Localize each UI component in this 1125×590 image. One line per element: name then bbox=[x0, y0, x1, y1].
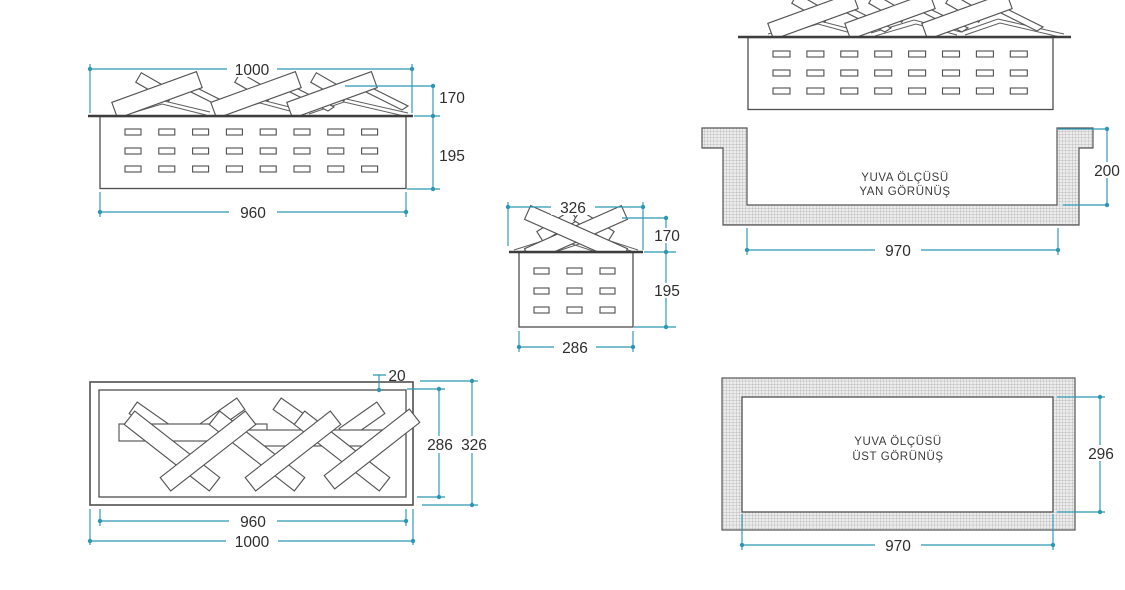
vent-slot bbox=[567, 268, 582, 274]
dim-value: 960 bbox=[240, 514, 266, 531]
recess-label-line1: YUVA ÖLÇÜSÜ bbox=[861, 172, 949, 184]
vent-slot bbox=[125, 129, 141, 135]
log-main bbox=[112, 72, 202, 119]
dimension-inner-depth: 286 bbox=[407, 387, 457, 499]
dim-value: 1000 bbox=[235, 62, 270, 79]
vent-slot bbox=[362, 148, 378, 154]
dim-value: 296 bbox=[1088, 446, 1114, 463]
dim-value: 195 bbox=[439, 148, 465, 165]
recess-label-line2: YAN GÖRÜNÜŞ bbox=[859, 186, 950, 198]
dim-value: 326 bbox=[461, 437, 487, 454]
vent-slot bbox=[534, 288, 549, 294]
vent-slot bbox=[260, 129, 276, 135]
vent-slot bbox=[600, 307, 615, 313]
dimension-bottom-width: 960 bbox=[98, 192, 408, 222]
dim-value: 200 bbox=[1094, 163, 1120, 180]
dim-value: 170 bbox=[654, 228, 680, 245]
burner-tray-body bbox=[748, 38, 1053, 110]
vent-slot bbox=[943, 51, 960, 57]
dim-value: 970 bbox=[885, 243, 911, 260]
burner-tray-body bbox=[100, 117, 406, 189]
vent-slot bbox=[125, 148, 141, 154]
vent-slot bbox=[1010, 88, 1027, 94]
vent-slot bbox=[294, 129, 310, 135]
vent-slot bbox=[125, 166, 141, 172]
dim-value: 326 bbox=[560, 200, 586, 217]
technical-drawing-page: 1000 170 195 960 bbox=[0, 0, 1125, 590]
dim-value: 170 bbox=[439, 90, 465, 107]
recess-label-line1: YUVA ÖLÇÜSÜ bbox=[854, 436, 942, 448]
vent-slot bbox=[1010, 70, 1027, 76]
vent-slot bbox=[193, 166, 209, 172]
dimension-bottom-width: 286 bbox=[517, 331, 635, 357]
vent-slot bbox=[159, 129, 175, 135]
vent-slot bbox=[294, 166, 310, 172]
dim-value: 960 bbox=[240, 205, 266, 222]
vent-slot bbox=[773, 88, 790, 94]
dim-value: 1000 bbox=[235, 534, 270, 551]
dim-value: 286 bbox=[562, 340, 588, 357]
dim-value: 20 bbox=[388, 368, 406, 385]
dim-value: 970 bbox=[885, 538, 911, 555]
vent-slot bbox=[534, 307, 549, 313]
vent-slot bbox=[159, 166, 175, 172]
vent-slot bbox=[807, 88, 824, 94]
vent-slot bbox=[362, 166, 378, 172]
vent-slot bbox=[226, 166, 242, 172]
vent-slot bbox=[943, 88, 960, 94]
vent-slot bbox=[841, 70, 858, 76]
vent-slot bbox=[841, 51, 858, 57]
vent-slot bbox=[875, 88, 892, 94]
vent-slot bbox=[328, 129, 344, 135]
vent-slot bbox=[159, 148, 175, 154]
vent-slot bbox=[226, 129, 242, 135]
vent-slot bbox=[294, 148, 310, 154]
vent-slot bbox=[260, 148, 276, 154]
dimension-log-height: 170 bbox=[622, 216, 684, 254]
vent-slot bbox=[328, 148, 344, 154]
vent-slot bbox=[773, 70, 790, 76]
vent-slot bbox=[600, 288, 615, 294]
dimension-body-height: 195 bbox=[634, 252, 684, 329]
vent-slot bbox=[909, 88, 926, 94]
vent-slot bbox=[193, 148, 209, 154]
dim-value: 195 bbox=[654, 283, 680, 300]
vent-slot bbox=[1010, 51, 1027, 57]
vent-slot bbox=[567, 288, 582, 294]
vent-slot bbox=[943, 70, 960, 76]
recess-side-view: YUVA ÖLÇÜSÜ YAN GÖRÜNÜŞ 200 970 bbox=[702, 127, 1125, 260]
vent-slot bbox=[567, 307, 582, 313]
vent-slot bbox=[875, 51, 892, 57]
vent-slot bbox=[909, 51, 926, 57]
vent-slot bbox=[193, 129, 209, 135]
burner-front-view-right bbox=[738, 0, 1071, 110]
vent-slot bbox=[841, 88, 858, 94]
vent-slot bbox=[976, 70, 993, 76]
vent-slot bbox=[976, 51, 993, 57]
vent-slot bbox=[909, 70, 926, 76]
burner-top-view: 20 286 326 960 1000 bbox=[88, 368, 491, 551]
drawing-canvas: 1000 170 195 960 bbox=[0, 0, 1125, 590]
vent-slot bbox=[534, 268, 549, 274]
recess-top-view: YUVA ÖLÇÜSÜ ÜST GÖRÜNÜŞ 296 970 bbox=[722, 378, 1119, 555]
vent-slot bbox=[600, 268, 615, 274]
dimension-width: 970 bbox=[745, 228, 1060, 260]
recess-label-line2: ÜST GÖRÜNÜŞ bbox=[852, 451, 943, 463]
burner-front-view: 1000 170 195 960 bbox=[88, 61, 466, 222]
vent-slot bbox=[976, 88, 993, 94]
vent-slot bbox=[807, 51, 824, 57]
dimension-inner-width: 960 bbox=[98, 509, 408, 531]
dimension-body-height: 195 bbox=[407, 116, 465, 191]
vent-slot bbox=[807, 70, 824, 76]
vent-slot bbox=[226, 148, 242, 154]
vent-slot bbox=[260, 166, 276, 172]
vent-slot bbox=[328, 166, 344, 172]
vent-slot bbox=[773, 51, 790, 57]
burner-side-view: 326 170 195 286 bbox=[506, 199, 684, 357]
vent-slot bbox=[362, 129, 378, 135]
dim-value: 286 bbox=[427, 437, 453, 454]
vent-slot bbox=[875, 70, 892, 76]
